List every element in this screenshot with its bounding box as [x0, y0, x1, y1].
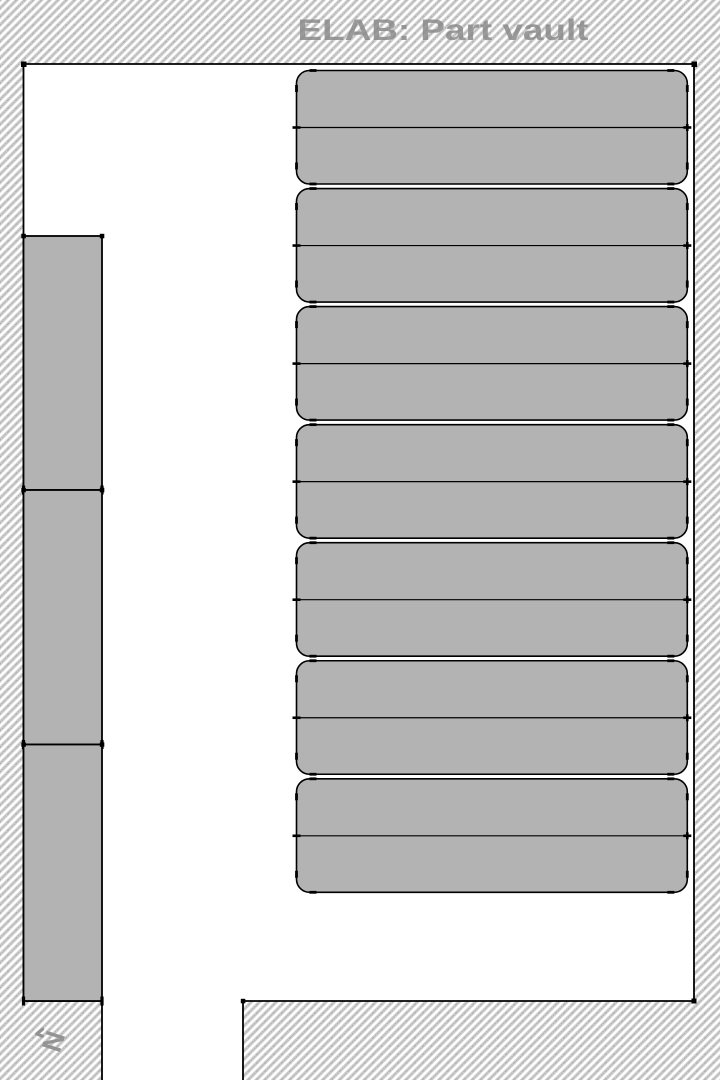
svg-text:ELAB: Part vault: ELAB: Part vault: [298, 14, 589, 47]
